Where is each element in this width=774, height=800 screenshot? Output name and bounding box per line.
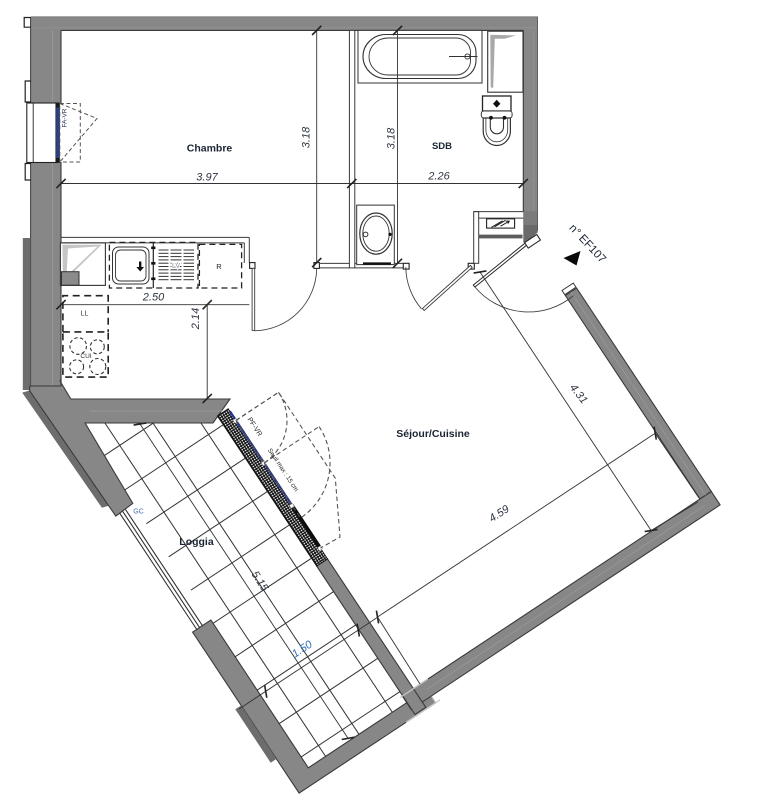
svg-text:FA-VR: FA-VR	[62, 108, 69, 127]
svg-text:2.14: 2.14	[190, 308, 202, 330]
svg-text:LV: LV	[172, 263, 180, 270]
svg-text:Chambre: Chambre	[187, 143, 233, 155]
svg-text:GC: GC	[133, 509, 144, 516]
svg-text:R: R	[216, 262, 222, 271]
svg-text:Séjour/Cuisine: Séjour/Cuisine	[396, 428, 470, 440]
svg-text:3.18: 3.18	[301, 126, 313, 148]
svg-text:LL: LL	[81, 311, 89, 318]
svg-text:CUI: CUI	[80, 353, 91, 360]
svg-text:3.18: 3.18	[385, 127, 397, 149]
svg-text:2.26: 2.26	[427, 171, 450, 183]
svg-text:3.97: 3.97	[196, 172, 218, 184]
svg-text:Loggia: Loggia	[179, 536, 214, 548]
svg-text:SDB: SDB	[432, 141, 452, 152]
svg-text:2.50: 2.50	[142, 292, 165, 304]
